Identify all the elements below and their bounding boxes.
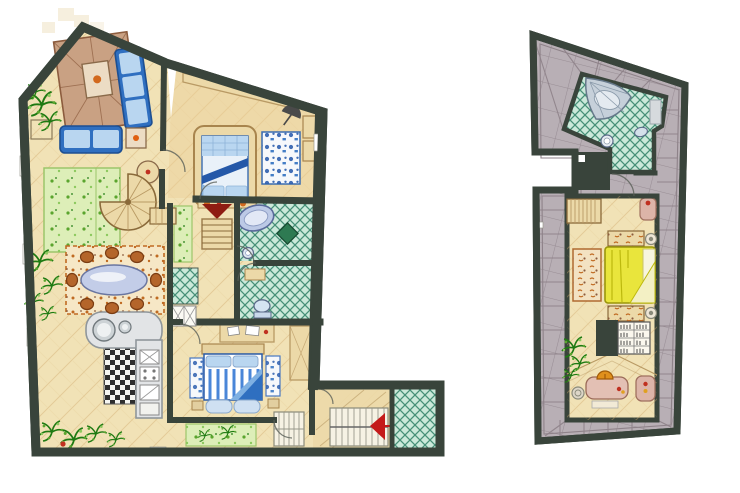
desk-stool [572, 387, 584, 399]
attic-studio-bedroom [562, 196, 657, 420]
attic-floor-plan [528, 30, 690, 445]
attic-stairs [567, 199, 601, 223]
ground-floor-plan [15, 8, 447, 460]
stairwell-void [596, 320, 618, 356]
alcove-double-bed [194, 126, 256, 206]
bookshelf [618, 322, 650, 354]
side-table-item [133, 135, 139, 141]
kitchen-checkered-floor [104, 344, 138, 404]
foot-stool-left [192, 401, 203, 410]
blue-blotch-rug [262, 132, 300, 184]
toilet [254, 300, 270, 312]
hall-runner-rug [174, 206, 192, 262]
porch-tile [394, 389, 436, 449]
entry-staircase [330, 408, 392, 446]
floor-plan-drawing [0, 0, 740, 493]
brown-floral-rug [573, 249, 601, 301]
wc-shelf [245, 269, 265, 280]
pink-armchair [636, 376, 655, 401]
bench-lower [608, 306, 644, 321]
blue-loveseat [60, 126, 122, 153]
yellow-double-bed [605, 247, 655, 303]
red-berry [60, 441, 65, 446]
step-grille [274, 412, 304, 446]
terrace-green-rug [186, 424, 256, 446]
floor-plan-sheet [0, 0, 740, 493]
hall-tile-square [172, 268, 198, 304]
bench-upper [608, 231, 644, 246]
foot-stool-right [268, 399, 279, 408]
headboard [202, 344, 264, 354]
wall-shelf [650, 100, 661, 124]
